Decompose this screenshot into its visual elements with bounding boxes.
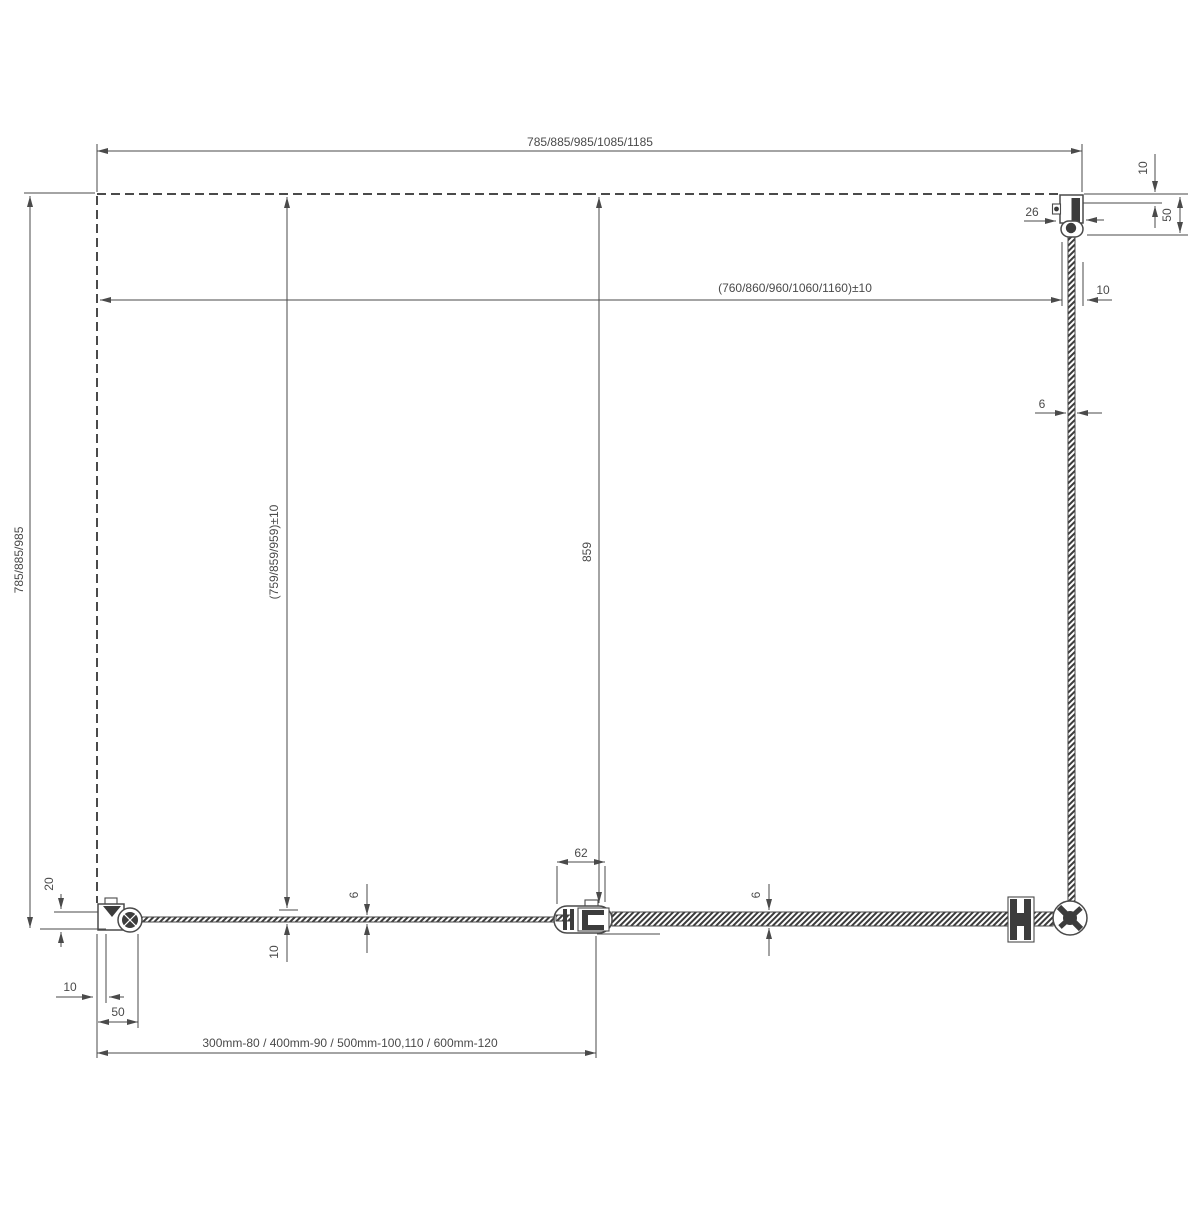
dim-label: (759/859/959)±10 [267,504,281,599]
dim-label: 6 [749,891,763,898]
dim-label: 10 [1096,283,1110,297]
dim-label: 26 [1025,205,1039,219]
dim-label: 10 [1136,161,1150,175]
clamp-bar [570,909,574,930]
technical-drawing-page: 785/885/985/1085/1185 (760/860/960/1060/… [0,0,1200,1200]
dim-extension-profiles: 300mm-80 / 400mm-90 / 500mm-100,110 / 60… [97,936,596,1058]
door-bracket [1008,897,1034,942]
dim-connector-width: 62 [557,846,605,904]
dim-bottom-profile-width: 50 [98,934,138,1028]
dim-label: (760/860/960/1060/1160)±10 [718,281,872,295]
hinge-pin [1066,223,1076,233]
dim-label: 20 [42,877,56,891]
side-glass-panel [1068,236,1075,902]
dim-label: 6 [1039,397,1046,411]
dim-label: 300mm-80 / 400mm-90 / 500mm-100,110 / 60… [202,1036,498,1050]
hinge-pin [1063,911,1077,925]
dim-label: 50 [1160,208,1174,222]
screw-dot [1054,207,1059,212]
wall-profile-bottom-left [98,898,142,932]
profile-insert [1072,198,1081,222]
dim-label: 62 [574,846,588,860]
wall-profile-top-right [1053,195,1084,237]
dim-bottom-wall-gap: 10 [56,934,124,1058]
pivot-jaw-back [582,910,588,930]
dim-label: 785/885/985/1085/1185 [527,135,653,149]
fixed-glass-panel [142,917,556,922]
corner-hinge [1053,901,1087,935]
dim-top-width: 785/885/985/1085/1185 [97,135,1082,192]
dim-label: 6 [347,891,361,898]
bracket-crossbar [1017,913,1024,926]
dim-label: 10 [267,945,281,959]
dim-label: 50 [111,1005,125,1019]
dim-top-right-detail: 10 50 [1083,154,1188,235]
dim-label: 859 [580,542,594,562]
shower-enclosure-plan-drawing: 785/885/985/1085/1185 (760/860/960/1060/… [0,0,1200,1200]
glass-panels [142,236,1075,926]
dim-left-height: 785/885/985 [12,193,95,928]
dim-label: 10 [63,980,77,994]
bracket-bar-left [1010,899,1017,940]
dim-label: 785/885/985 [12,526,26,593]
door-glass-panel [612,912,1053,926]
dim-inner-width: (760/860/960/1060/1160)±10 10 [100,242,1112,306]
dim-fixed-panel-height: (759/859/959)±10 10 [267,197,298,962]
dim-door-width: 859 [580,197,599,903]
clamp-bar [563,909,567,930]
bracket-bar-right [1024,899,1031,940]
